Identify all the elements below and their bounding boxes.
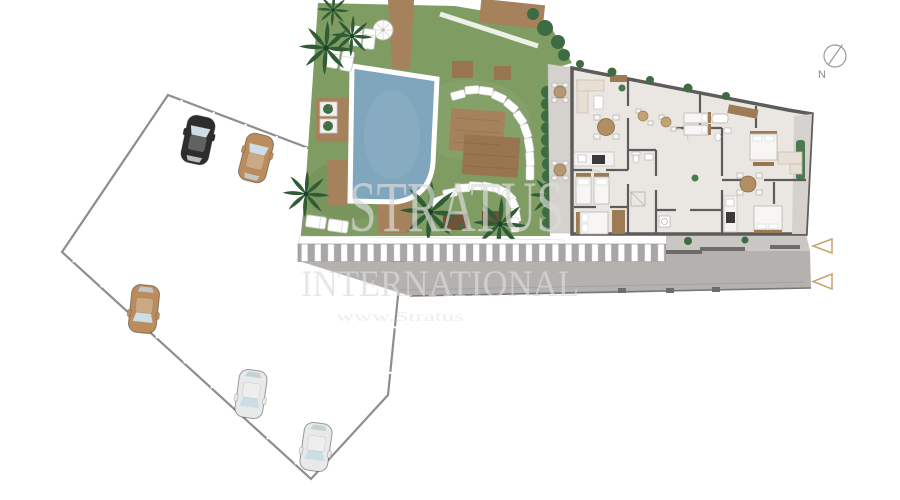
watermark-brand: STRATUS [349, 167, 564, 247]
courtyard-tree [742, 237, 749, 244]
parasol [373, 20, 393, 40]
watermark-subtitle: INTERNATIONAL [301, 264, 579, 305]
kitchen-2 [724, 196, 737, 232]
building-floorplan [548, 60, 812, 234]
parking-marked-zone [361, 321, 404, 374]
wardrobe [612, 210, 625, 234]
twin-bed [576, 173, 591, 204]
site-entrance-arrows [813, 239, 832, 289]
site-plan-drawing: N STRATUS INTERNATIONAL www.Stratus [0, 0, 900, 500]
entrance-arrow-icon [813, 274, 832, 289]
twin-bed [684, 124, 711, 135]
potted-plant [692, 175, 699, 182]
north-compass: N [818, 45, 846, 82]
sun-lounger [362, 28, 376, 49]
compass-north-label: N [818, 69, 826, 81]
wood-deck-pool-left [327, 160, 348, 205]
twin-bed [594, 173, 609, 204]
watermark-website: www.Stratus [336, 310, 464, 325]
car-white-bottom [297, 421, 335, 473]
pergola-bench-1 [452, 61, 473, 78]
sun-lounger [305, 215, 326, 230]
twin-bed [684, 112, 711, 123]
pergola-bench-2 [494, 66, 511, 80]
car-tan-left [126, 283, 163, 334]
courtyard-tree [684, 237, 692, 245]
laundry-machine [659, 216, 670, 227]
double-bed [754, 206, 782, 233]
sun-lounger [327, 219, 348, 234]
double-bed [576, 212, 608, 234]
car-black [177, 113, 218, 167]
compass-needle-icon [829, 45, 843, 65]
kitchen-1 [574, 152, 614, 166]
car-white-middle [232, 368, 270, 420]
entrance-arrow-icon [813, 239, 832, 253]
potted-plant [619, 85, 626, 92]
site-plan-canvas: N STRATUS INTERNATIONAL www.Stratus [0, 0, 900, 500]
coffee-table [594, 96, 603, 109]
